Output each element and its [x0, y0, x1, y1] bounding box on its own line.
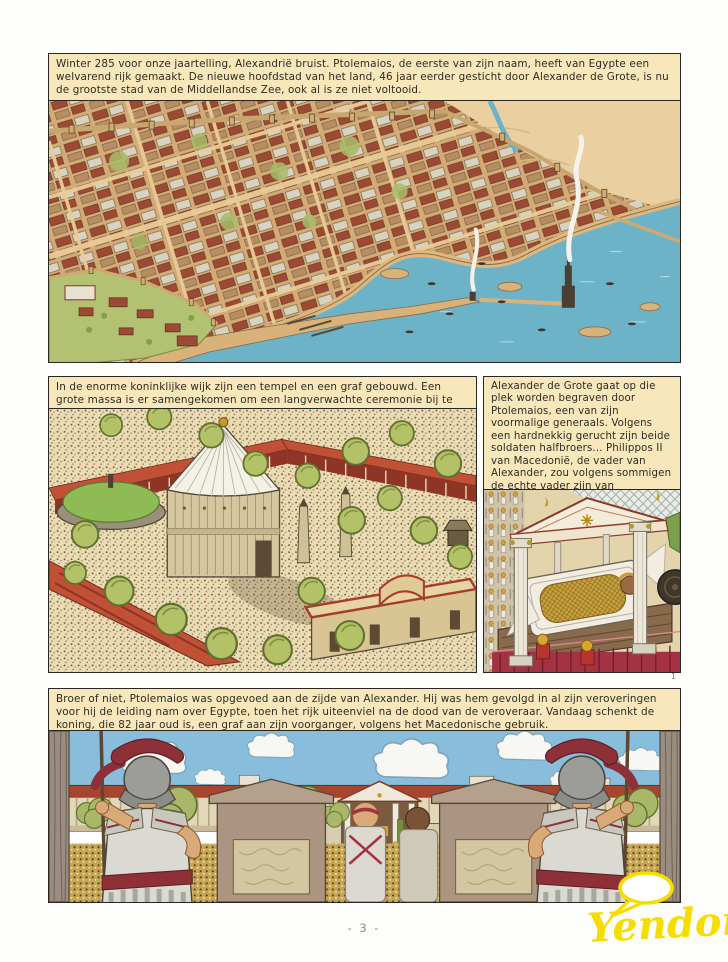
caption-text-4: Broer of niet, Ptolemaios was opgevoed a…	[56, 693, 657, 731]
royal-quarter-illustration	[49, 409, 476, 672]
caption-text-2: In de enorme koninklijke wijk zijn een t…	[56, 381, 453, 409]
caption-box-2: In de enorme koninklijke wijk zijn een t…	[49, 377, 476, 409]
panel-alexandria-aerial: Winter 285 voor onze jaartelling, Alexan…	[48, 53, 681, 363]
panel-royal-quarter: In de enorme koninklijke wijk zijn een t…	[48, 376, 477, 673]
plate-number: 1	[671, 672, 676, 681]
panel-tomb-interior: Alexander de Grote gaat op die plek word…	[483, 376, 681, 673]
yendor-logo-graphic: Yendor	[584, 854, 728, 958]
caption-box-4: Broer of niet, Ptolemaios was opgevoed a…	[49, 689, 680, 731]
alexandria-aerial-illustration	[49, 101, 680, 362]
caption-box-3: Alexander de Grote gaat op die plek word…	[484, 377, 680, 490]
publisher-logo-text: Yendor	[586, 897, 728, 952]
caption-box-1: Winter 285 voor onze jaartelling, Alexan…	[49, 54, 680, 101]
caption-text-1: Winter 285 voor onze jaartelling, Alexan…	[56, 58, 669, 96]
tomb-interior-illustration	[484, 490, 680, 672]
caption-text-3: Alexander de Grote gaat op die plek word…	[491, 381, 671, 490]
publisher-logo: Yendor	[584, 854, 728, 958]
